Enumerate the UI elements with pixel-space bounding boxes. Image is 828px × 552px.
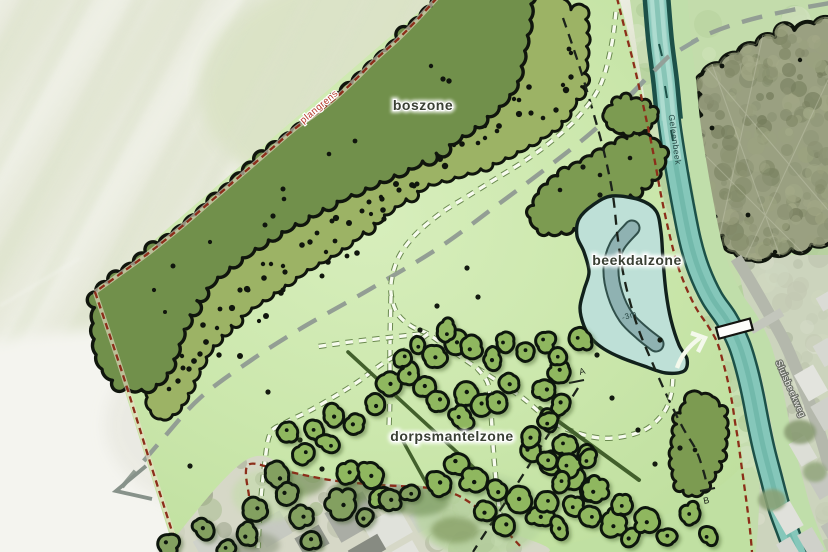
svg-text:beekdalzone: beekdalzone [592, 252, 682, 268]
svg-text:dorpsmantelzone: dorpsmantelzone [390, 428, 513, 444]
svg-text:boszone: boszone [393, 97, 453, 113]
